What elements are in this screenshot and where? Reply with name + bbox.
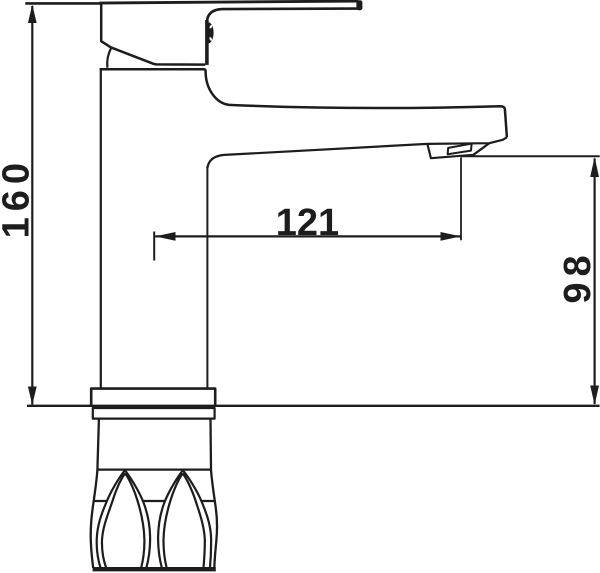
svg-text:98: 98 <box>557 249 599 303</box>
svg-text:160: 160 <box>0 157 38 238</box>
svg-text:121: 121 <box>276 202 339 244</box>
